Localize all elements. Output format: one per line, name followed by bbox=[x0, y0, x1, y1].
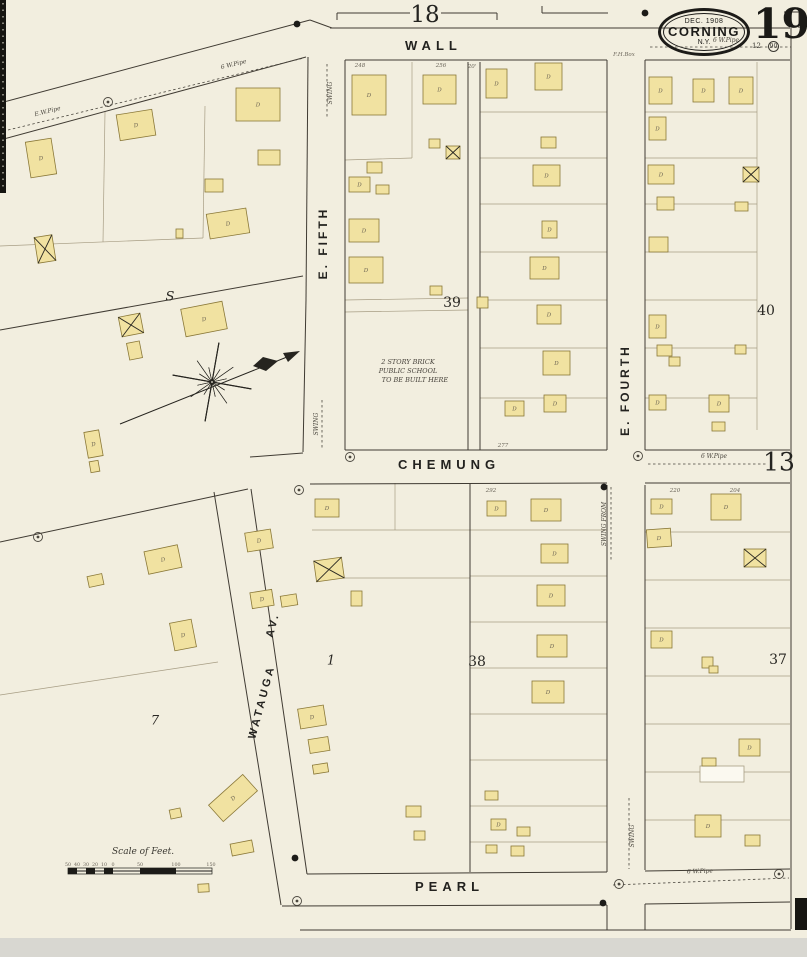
building-footprint bbox=[312, 763, 328, 774]
scale-tick-label: 50 bbox=[137, 862, 143, 868]
dwelling-label: D bbox=[356, 183, 362, 189]
sheet-corner-mark-right: 90 bbox=[768, 41, 779, 52]
dwelling-label: D bbox=[716, 402, 722, 408]
dwelling-label: D bbox=[541, 266, 547, 272]
building bbox=[735, 202, 748, 211]
water-pipe-line bbox=[613, 878, 789, 885]
building-footprint bbox=[414, 831, 425, 840]
building: D bbox=[535, 63, 562, 90]
scale-tick-label: 20 bbox=[92, 862, 98, 868]
dwelling-label: D bbox=[545, 690, 551, 696]
dwelling-label: D bbox=[551, 552, 557, 558]
house-number: 277 bbox=[497, 443, 509, 449]
building bbox=[87, 574, 104, 588]
building: D bbox=[649, 77, 672, 104]
block-number-1: 1 bbox=[327, 654, 335, 669]
building-footprint bbox=[700, 766, 744, 782]
dwelling-label: D bbox=[658, 173, 664, 179]
adjacent-sheet-right: 13 bbox=[763, 448, 795, 477]
bottom-edge-strip bbox=[0, 938, 807, 957]
left-edge-strip bbox=[0, 0, 6, 193]
building bbox=[351, 591, 362, 606]
building-footprint bbox=[485, 791, 498, 800]
building-footprint bbox=[486, 845, 497, 853]
building-footprint bbox=[657, 197, 674, 210]
title-cartouche: DEC. 1908 CORNING N.Y. bbox=[658, 8, 750, 56]
scale-bar-segment bbox=[140, 868, 176, 874]
water-pipe-label: E.W.Pipe bbox=[33, 105, 62, 119]
house-number: 292 bbox=[485, 488, 497, 494]
dwelling-label: D bbox=[495, 823, 501, 829]
building: D bbox=[491, 819, 506, 830]
dwelling-label: D bbox=[657, 89, 663, 95]
hydrant-ring-icon bbox=[618, 883, 621, 886]
scale-tick-label: 50 bbox=[65, 862, 71, 868]
building: D bbox=[537, 585, 565, 606]
block-number-7: 7 bbox=[151, 714, 159, 729]
building bbox=[230, 840, 254, 856]
building bbox=[280, 594, 298, 607]
title-cartouche-inner: DEC. 1908 CORNING N.Y. bbox=[663, 13, 745, 51]
building: D bbox=[486, 69, 507, 98]
water-pipe-label: SWING FROM bbox=[601, 501, 608, 546]
building-footprint bbox=[657, 345, 672, 356]
building: D bbox=[544, 395, 566, 412]
building-footprint bbox=[712, 422, 725, 431]
title-state: N.Y. bbox=[698, 39, 711, 46]
building bbox=[176, 229, 183, 238]
building-footprint bbox=[87, 574, 104, 588]
building bbox=[308, 737, 330, 754]
scale-tick-label: 100 bbox=[171, 862, 180, 868]
building: D bbox=[206, 208, 249, 239]
dwelling-label: D bbox=[658, 638, 664, 644]
building: D bbox=[693, 79, 714, 102]
building: D bbox=[487, 501, 506, 516]
building: D bbox=[729, 77, 753, 104]
building-footprint bbox=[430, 286, 442, 295]
building: D bbox=[542, 221, 557, 238]
building: D bbox=[711, 494, 741, 520]
building bbox=[258, 150, 280, 165]
school-note-line2: PUBLIC SCHOOL bbox=[364, 367, 452, 376]
dwelling-label: D bbox=[543, 508, 549, 514]
building bbox=[89, 460, 100, 472]
road-line bbox=[307, 872, 607, 874]
scale-tick-label: 10 bbox=[101, 862, 107, 868]
building-footprint bbox=[308, 737, 330, 754]
building: D bbox=[423, 75, 456, 104]
title-city: CORNING bbox=[668, 25, 740, 39]
house-number: F.H.Box bbox=[612, 52, 636, 58]
dwelling-label: D bbox=[366, 93, 372, 99]
hydrant-ring-icon bbox=[37, 536, 40, 539]
street-label-chemung: CHEMUNG bbox=[398, 457, 500, 472]
sheet-corner-mark-left: 12 bbox=[752, 42, 761, 50]
building: D bbox=[298, 705, 327, 729]
scale-bar-segment bbox=[68, 868, 77, 874]
building: D bbox=[651, 631, 672, 648]
building: D bbox=[209, 774, 258, 821]
building: D bbox=[531, 499, 561, 521]
building bbox=[745, 835, 760, 846]
building-footprint bbox=[230, 840, 254, 856]
water-pipe-label: SWING bbox=[629, 824, 636, 847]
dwelling-label: D bbox=[363, 268, 369, 274]
building bbox=[430, 286, 442, 295]
building: D bbox=[537, 635, 567, 657]
lot-line bbox=[103, 112, 105, 242]
building: D bbox=[349, 257, 383, 283]
dwelling-label: D bbox=[493, 507, 499, 513]
map-canvas: E.W.Pipe6 W.Pipe6 W.Pipe6 W.Pipe6 W.Pipe… bbox=[0, 0, 807, 957]
road-line bbox=[306, 57, 308, 300]
dwelling-label: D bbox=[543, 174, 549, 180]
building: D bbox=[84, 430, 103, 458]
house-number: 204 bbox=[729, 488, 741, 494]
scale-tick-label: 0 bbox=[111, 862, 114, 868]
block-number-S: S bbox=[166, 290, 175, 305]
water-pipe-label: SWING bbox=[313, 412, 320, 435]
water-pipe-label: 6 W.Pipe bbox=[687, 868, 714, 876]
building: D bbox=[116, 109, 156, 140]
building-footprint bbox=[205, 179, 223, 192]
building bbox=[541, 137, 556, 148]
building-footprint bbox=[477, 297, 488, 308]
building-footprint bbox=[702, 758, 716, 766]
building bbox=[477, 297, 488, 308]
road-line bbox=[310, 483, 607, 484]
building bbox=[205, 179, 223, 192]
building: D bbox=[543, 351, 570, 375]
compass-center bbox=[211, 381, 213, 383]
building bbox=[406, 806, 421, 817]
building-footprint bbox=[176, 229, 183, 238]
scale-tick-label: 150 bbox=[206, 862, 215, 868]
lot-line bbox=[0, 662, 218, 695]
hydrant-dot-icon bbox=[294, 21, 301, 28]
building: D bbox=[739, 739, 760, 756]
building-footprint bbox=[429, 139, 440, 148]
building bbox=[414, 831, 425, 840]
dwelling-label: D bbox=[746, 746, 752, 752]
dwelling-label: D bbox=[255, 103, 261, 109]
school-note: 2 STORY BRICK PUBLIC SCHOOL TO BE BUILT … bbox=[364, 358, 452, 385]
dwelling-label: D bbox=[654, 325, 660, 331]
building: D bbox=[651, 499, 672, 514]
hydrant-ring-icon bbox=[349, 456, 352, 459]
building-footprint bbox=[406, 806, 421, 817]
building bbox=[367, 162, 382, 173]
building-footprint bbox=[351, 591, 362, 606]
building-footprint bbox=[367, 162, 382, 173]
building bbox=[712, 422, 725, 431]
building: D bbox=[315, 499, 339, 517]
dwelling-label: D bbox=[546, 313, 552, 319]
building: D bbox=[532, 681, 564, 703]
building: D bbox=[236, 88, 280, 121]
hydrant-dot-icon bbox=[292, 855, 299, 862]
scale-bar-segment bbox=[104, 868, 113, 874]
block-number-37: 37 bbox=[769, 652, 787, 668]
lot-line bbox=[345, 158, 412, 160]
building bbox=[709, 666, 718, 673]
dwelling-label: D bbox=[656, 536, 662, 542]
road-line bbox=[303, 300, 306, 452]
building bbox=[702, 758, 716, 766]
dwelling-label: D bbox=[705, 824, 711, 830]
block-number-40: 40 bbox=[757, 303, 775, 319]
scale-caption: Scale of Feet. bbox=[112, 847, 174, 857]
building bbox=[126, 341, 142, 360]
building: D bbox=[649, 117, 666, 140]
dwelling-label: D bbox=[738, 89, 744, 95]
dwelling-label: D bbox=[324, 506, 330, 512]
hydrant-dot-icon bbox=[642, 10, 649, 17]
road-line bbox=[250, 453, 303, 457]
building-footprint bbox=[709, 666, 718, 673]
building-footprint bbox=[126, 341, 142, 360]
building: D bbox=[144, 545, 182, 575]
dwelling-label: D bbox=[549, 644, 555, 650]
building-footprint bbox=[511, 846, 524, 856]
house-number: 20' bbox=[467, 64, 477, 70]
building-footprint bbox=[280, 594, 298, 607]
building: D bbox=[648, 165, 674, 184]
building bbox=[511, 846, 524, 856]
building bbox=[657, 197, 674, 210]
scale-bar-segment bbox=[86, 868, 95, 874]
dwelling-label: D bbox=[361, 229, 367, 235]
street-label-wall: WALL bbox=[405, 38, 462, 53]
scale-tick-label: 40 bbox=[74, 862, 80, 868]
building bbox=[34, 235, 56, 263]
building: D bbox=[349, 177, 370, 192]
building-footprint bbox=[735, 202, 748, 211]
building bbox=[485, 791, 498, 800]
street-label-e-fifth: E. FIFTH bbox=[316, 207, 330, 280]
corner-black-mark bbox=[795, 898, 807, 930]
building bbox=[446, 146, 460, 159]
building bbox=[744, 549, 766, 567]
sheet-number: 19 bbox=[753, 0, 807, 48]
building: D bbox=[533, 165, 560, 186]
road-line bbox=[0, 276, 303, 330]
building bbox=[743, 167, 759, 182]
building bbox=[314, 557, 345, 582]
building bbox=[649, 237, 668, 252]
building bbox=[198, 884, 209, 893]
hydrant-ring-icon bbox=[107, 101, 110, 104]
block-number-38: 38 bbox=[468, 654, 486, 670]
dwelling-label: D bbox=[723, 505, 729, 511]
building bbox=[517, 827, 530, 836]
dwelling-label: D bbox=[511, 407, 517, 413]
compass-arrowhead-icon bbox=[283, 351, 300, 362]
building: D bbox=[541, 544, 568, 563]
dwelling-label: D bbox=[548, 594, 554, 600]
building bbox=[169, 808, 182, 819]
block-number-39: 39 bbox=[443, 295, 461, 311]
building-footprint bbox=[517, 827, 530, 836]
road-line bbox=[645, 902, 790, 904]
water-pipe-label: 6 W.Pipe bbox=[220, 58, 247, 71]
street-label-pearl: PEARL bbox=[415, 879, 484, 894]
dwelling-label: D bbox=[493, 82, 499, 88]
hydrant-ring-icon bbox=[298, 489, 301, 492]
adjacent-sheet-top: 18 bbox=[410, 2, 439, 28]
building: D bbox=[250, 589, 274, 608]
water-pipe-label: SWING bbox=[327, 81, 334, 104]
building-footprint bbox=[745, 835, 760, 846]
hydrant-ring-icon bbox=[637, 455, 640, 458]
dwelling-label: D bbox=[553, 361, 559, 367]
building bbox=[376, 185, 389, 194]
building: D bbox=[530, 257, 559, 279]
dwelling-label: D bbox=[546, 228, 552, 234]
building: D bbox=[245, 529, 274, 552]
house-number: 220 bbox=[669, 488, 681, 494]
hydrant-dot-icon bbox=[601, 484, 608, 491]
scale-tick-label: 30 bbox=[83, 862, 89, 868]
road-line bbox=[282, 905, 607, 906]
hydrant-dot-icon bbox=[600, 900, 607, 907]
building bbox=[312, 763, 328, 774]
street-label-e-fourth: E. FOURTH bbox=[618, 344, 632, 436]
building bbox=[486, 845, 497, 853]
building: D bbox=[695, 815, 721, 837]
dwelling-label: D bbox=[545, 75, 551, 81]
building: D bbox=[649, 315, 666, 338]
road-line bbox=[310, 20, 332, 28]
dwelling-label: D bbox=[552, 402, 558, 408]
building-footprint bbox=[541, 137, 556, 148]
building bbox=[735, 345, 746, 354]
building bbox=[429, 139, 440, 148]
building-footprint bbox=[649, 237, 668, 252]
road-line bbox=[645, 869, 790, 871]
school-note-line1: 2 STORY BRICK bbox=[364, 358, 452, 367]
building-footprint bbox=[198, 884, 209, 893]
building bbox=[700, 766, 744, 782]
building: D bbox=[537, 305, 561, 324]
building: D bbox=[646, 528, 671, 548]
dwelling-label: D bbox=[658, 505, 664, 511]
school-note-line3: TO BE BUILT HERE bbox=[364, 376, 452, 385]
building-footprint bbox=[258, 150, 280, 165]
dwelling-label: D bbox=[436, 88, 442, 94]
building-footprint bbox=[89, 460, 100, 472]
lot-line bbox=[0, 238, 203, 246]
building-footprint bbox=[669, 357, 680, 366]
dwelling-label: D bbox=[654, 401, 660, 407]
hydrant-ring-icon bbox=[296, 900, 299, 903]
building: D bbox=[170, 619, 197, 651]
building bbox=[657, 345, 672, 356]
building: D bbox=[352, 75, 386, 115]
building-footprint bbox=[376, 185, 389, 194]
house-number: 248 bbox=[354, 63, 366, 69]
building: D bbox=[25, 138, 56, 178]
building: D bbox=[349, 219, 379, 242]
building-footprint bbox=[735, 345, 746, 354]
map-sheet: E.W.Pipe6 W.Pipe6 W.Pipe6 W.Pipe6 W.Pipe… bbox=[0, 0, 807, 957]
lot-line bbox=[203, 106, 205, 238]
building: D bbox=[505, 401, 524, 416]
building: D bbox=[181, 301, 228, 336]
building bbox=[118, 313, 143, 337]
building bbox=[669, 357, 680, 366]
building: D bbox=[649, 395, 666, 410]
dwelling-label: D bbox=[654, 127, 660, 133]
road-line bbox=[0, 489, 248, 542]
building: D bbox=[709, 395, 729, 412]
water-pipe-label: 6 W.Pipe bbox=[701, 453, 728, 460]
building-footprint bbox=[169, 808, 182, 819]
house-number: 256 bbox=[435, 63, 447, 69]
hydrant-ring-icon bbox=[778, 873, 781, 876]
dwelling-label: D bbox=[700, 89, 706, 95]
